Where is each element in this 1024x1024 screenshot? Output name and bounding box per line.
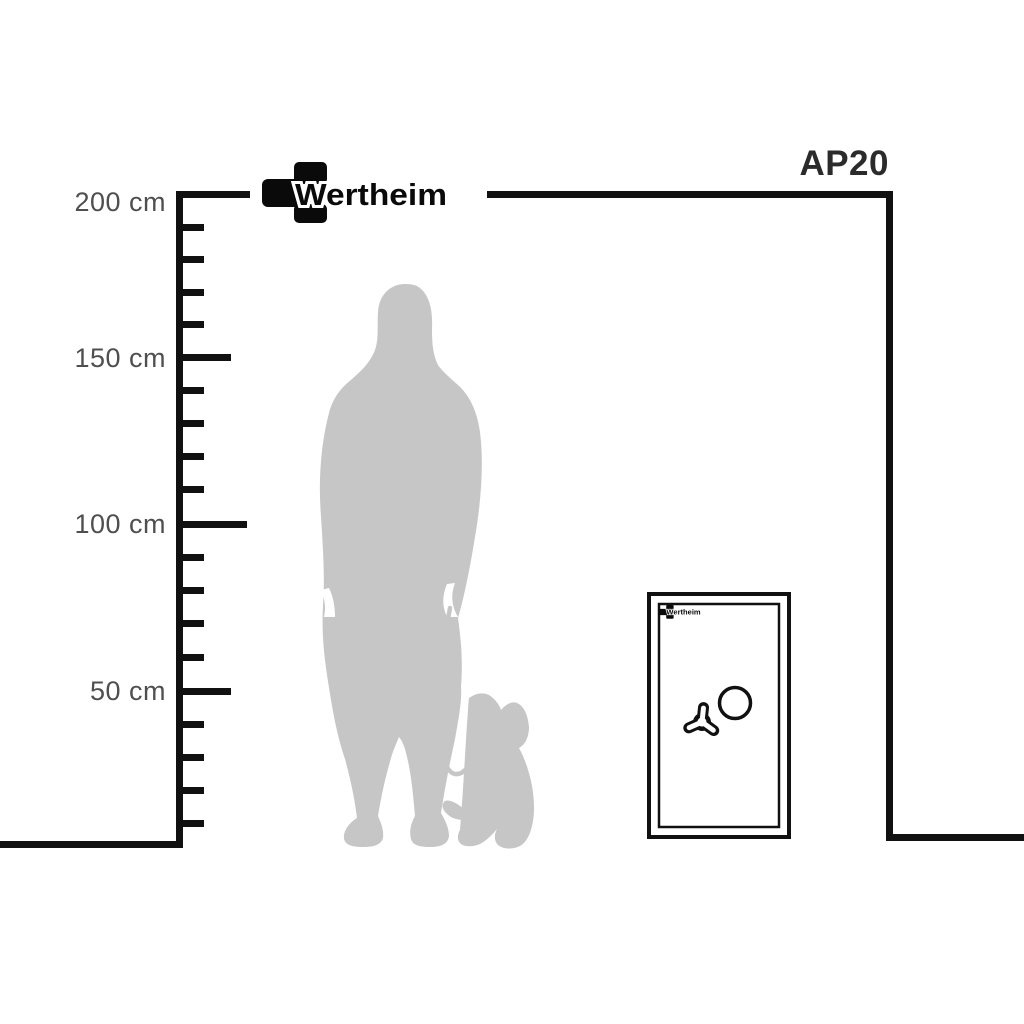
ruler-line	[176, 191, 183, 848]
ruler-label-200: 200 cm	[74, 187, 166, 217]
top-frame-line-right	[487, 191, 893, 198]
size-comparison-diagram: Wertheim	[0, 0, 1024, 1024]
ruler-label-150: 150 cm	[74, 343, 166, 373]
safe-illustration	[649, 594, 789, 837]
ruler-label-50: 50 cm	[90, 676, 166, 706]
top-frame-line-left	[176, 191, 250, 198]
wertheim-logo-large	[262, 162, 447, 223]
ruler-label-100: 100 cm	[74, 509, 166, 539]
ruler-tick-100	[183, 521, 247, 528]
bottom-right-baseline	[886, 834, 1024, 841]
right-frame-line	[886, 191, 893, 841]
ruler-tick-150	[183, 354, 231, 361]
ruler-tick-50	[183, 688, 231, 695]
safe-outer-border	[649, 594, 789, 837]
person-silhouette	[320, 284, 482, 847]
round-dial-icon	[720, 688, 751, 719]
model-label: AP20	[799, 144, 889, 183]
bottom-left-baseline	[0, 841, 183, 848]
height-ruler: 200 cm 150 cm 100 cm 50 cm	[74, 187, 247, 848]
